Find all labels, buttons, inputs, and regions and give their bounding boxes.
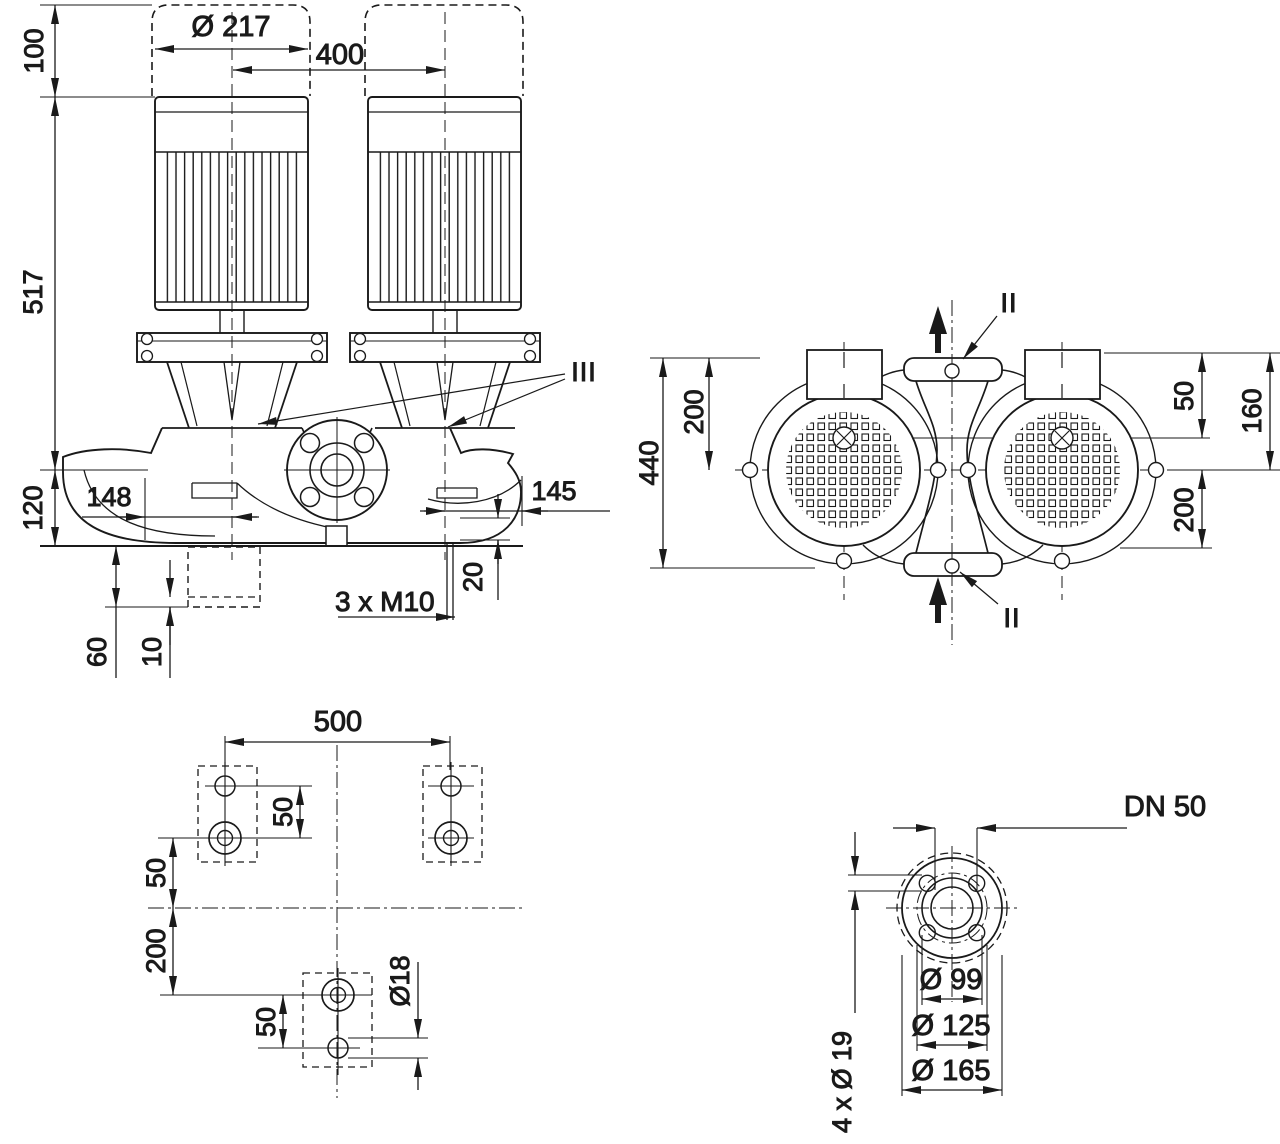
terminal-box-right xyxy=(1025,350,1100,399)
dim-label-100: 100 xyxy=(19,28,49,73)
section-label-III: III xyxy=(571,357,597,387)
dim-label-outer-dia: Ø 165 xyxy=(912,1055,991,1087)
dim-label-517: 517 xyxy=(18,269,48,314)
dim-label-200-foundation: 200 xyxy=(141,928,171,973)
front-view: 100 517 120 Ø 217 400 148 145 xyxy=(18,5,610,678)
dim-label-160: 160 xyxy=(1237,388,1267,433)
top-view: II II 440 200 50 160 200 xyxy=(634,288,1280,645)
dim-label-raised-face: Ø 99 xyxy=(920,964,983,996)
dim-label-bolt-circle: Ø 125 xyxy=(912,1010,991,1042)
dim-label-50-right: 50 xyxy=(1169,381,1199,411)
pump-dimension-drawing: 100 517 120 Ø 217 400 148 145 xyxy=(0,0,1280,1144)
motor-top-left xyxy=(743,376,946,569)
dim-label-dn50: DN 50 xyxy=(1124,791,1206,823)
dim-label-400: 400 xyxy=(316,39,364,71)
pump-casing xyxy=(40,428,523,620)
dim-label-145: 145 xyxy=(531,476,576,506)
discharge-flange xyxy=(284,417,390,523)
anchor-top-right xyxy=(423,762,482,866)
flange-detail: DN 50 Ø 99 Ø 125 Ø 165 4 x Ø 19 xyxy=(827,791,1206,1133)
dim-label-hole-dia: Ø18 xyxy=(385,955,415,1006)
foundation-block-hidden xyxy=(105,547,260,607)
foundation-plan: 500 50 50 200 50 Ø18 xyxy=(141,706,523,1098)
dim-label-148: 148 xyxy=(86,482,131,512)
section-label-II-bottom: II xyxy=(1003,603,1020,633)
dim-label-bolt-holes: 4 x Ø 19 xyxy=(827,1031,857,1133)
dim-label-440: 440 xyxy=(634,440,664,485)
motor-top-right xyxy=(961,376,1164,569)
dim-label-50-left: 50 xyxy=(141,858,171,888)
dim-label-20: 20 xyxy=(458,562,488,592)
dim-label-200-left: 200 xyxy=(679,389,709,434)
dim-label-fan-diameter: Ø 217 xyxy=(192,11,271,43)
flow-arrow-top xyxy=(929,306,947,353)
flow-arrow-bottom xyxy=(929,577,947,623)
dim-label-120: 120 xyxy=(18,485,48,530)
terminal-box-left xyxy=(807,350,882,399)
dim-label-500: 500 xyxy=(314,706,362,738)
flange-dimensions: DN 50 Ø 99 Ø 125 Ø 165 4 x Ø 19 xyxy=(827,791,1206,1133)
dim-label-10: 10 xyxy=(137,637,167,667)
dim-label-50-bottom: 50 xyxy=(251,1007,281,1037)
section-label-II-top: II xyxy=(1000,288,1017,318)
foundation-dimensions: 500 50 50 200 50 Ø18 xyxy=(141,706,450,1090)
dim-label-50-top: 50 xyxy=(268,797,298,827)
top-view-dimensions: 440 200 50 160 200 xyxy=(634,353,1280,568)
dim-label-200-right: 200 xyxy=(1169,487,1199,532)
dim-label-tapping: 3 x M10 xyxy=(335,586,435,617)
dim-label-60: 60 xyxy=(82,637,112,667)
